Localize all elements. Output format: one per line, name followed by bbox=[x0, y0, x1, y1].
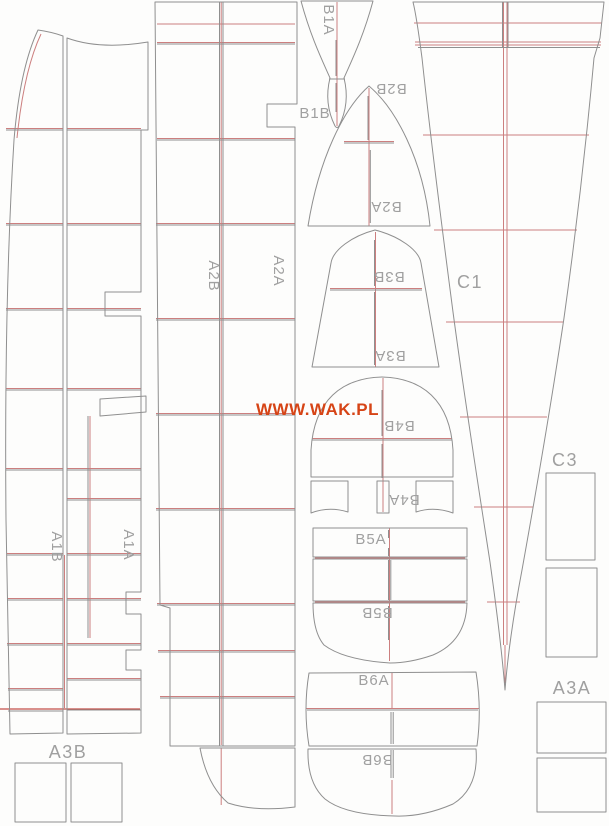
c1-center-red bbox=[504, 2, 508, 683]
c3-rect-1 bbox=[546, 473, 595, 560]
part-c1-label: C1 bbox=[457, 272, 483, 292]
part-a1b-label: A1B bbox=[48, 531, 65, 562]
part-b5a-label: B5A bbox=[355, 531, 386, 548]
a1a-outline bbox=[67, 38, 148, 734]
part-b4: B4B B4A bbox=[311, 377, 453, 513]
a1b-section-lines-red bbox=[6, 129, 63, 689]
c1-outline bbox=[413, 2, 604, 690]
part-a1a: A1A bbox=[67, 38, 148, 734]
a3b-rect-1 bbox=[15, 763, 66, 822]
part-b6a-label: B6A bbox=[358, 672, 389, 689]
pattern-sheet: A1B A1A A2B A2A B1A B1B B2 bbox=[0, 0, 609, 826]
c1-section-lines-red bbox=[414, 23, 602, 602]
watermark-text: WWW.WAK.PL bbox=[256, 400, 379, 419]
part-b4a-label: B4A bbox=[388, 491, 419, 508]
b4-right-foot bbox=[416, 481, 453, 513]
part-b5b-label: B5B bbox=[361, 604, 392, 621]
part-b3: B3B B3A bbox=[312, 230, 439, 367]
part-b2: B2B B2A bbox=[308, 80, 430, 226]
part-b1b-label: B1B bbox=[299, 105, 330, 122]
part-b6b: B6B bbox=[308, 749, 476, 816]
part-b3a-label: B3A bbox=[374, 347, 405, 364]
a1a-section-lines-red bbox=[67, 129, 141, 679]
part-a1b: A1B bbox=[0, 30, 140, 734]
a2-section-lines-red bbox=[156, 43, 295, 697]
part-a2b-label: A2B bbox=[205, 260, 222, 291]
part-b2a-label: B2A bbox=[370, 198, 401, 215]
c3-rect-2 bbox=[546, 568, 597, 657]
a1a-small-wedge-outline bbox=[100, 396, 146, 416]
part-b1: B1A B1B bbox=[299, 1, 373, 128]
part-a3b-label: A3B bbox=[49, 742, 88, 762]
part-c3-label: C3 bbox=[552, 450, 578, 470]
part-a2a-label: A2A bbox=[270, 255, 287, 286]
part-b6b-label: B6B bbox=[361, 751, 392, 768]
a3b-rect-2 bbox=[71, 763, 122, 822]
a1b-outline bbox=[6, 30, 63, 734]
part-c1: C1 bbox=[413, 2, 604, 690]
part-b6a: B6A bbox=[306, 672, 479, 746]
c1-top-band-marks bbox=[418, 2, 600, 48]
part-b2b-label: B2B bbox=[375, 80, 406, 97]
pattern-drawing: A1B A1A A2B A2A B1A B1B B2 bbox=[0, 0, 609, 826]
a3a-rect-2 bbox=[537, 758, 606, 812]
part-b5: B5A B5B bbox=[313, 528, 467, 663]
a2-outline bbox=[155, 2, 297, 746]
part-a3a-label: A3A bbox=[553, 678, 592, 698]
part-c3: C3 bbox=[546, 450, 597, 657]
b4-left-foot bbox=[311, 481, 348, 513]
part-b1a-label: B1A bbox=[320, 4, 337, 35]
a1b-section-lines bbox=[6, 130, 63, 711]
a3a-rect-1 bbox=[537, 702, 606, 753]
part-b4b-label: B4B bbox=[383, 417, 414, 434]
b6a-center-marks bbox=[391, 712, 393, 744]
part-a3a: A3A bbox=[537, 678, 606, 812]
part-b3b-label: B3B bbox=[373, 268, 404, 285]
a1a-section-lines bbox=[67, 130, 141, 710]
a2-section-lines bbox=[156, 44, 295, 698]
part-a3b: A3B bbox=[15, 742, 122, 822]
a2-bottom-piece-outline bbox=[200, 748, 295, 809]
part-a1a-label: A1A bbox=[120, 529, 137, 560]
